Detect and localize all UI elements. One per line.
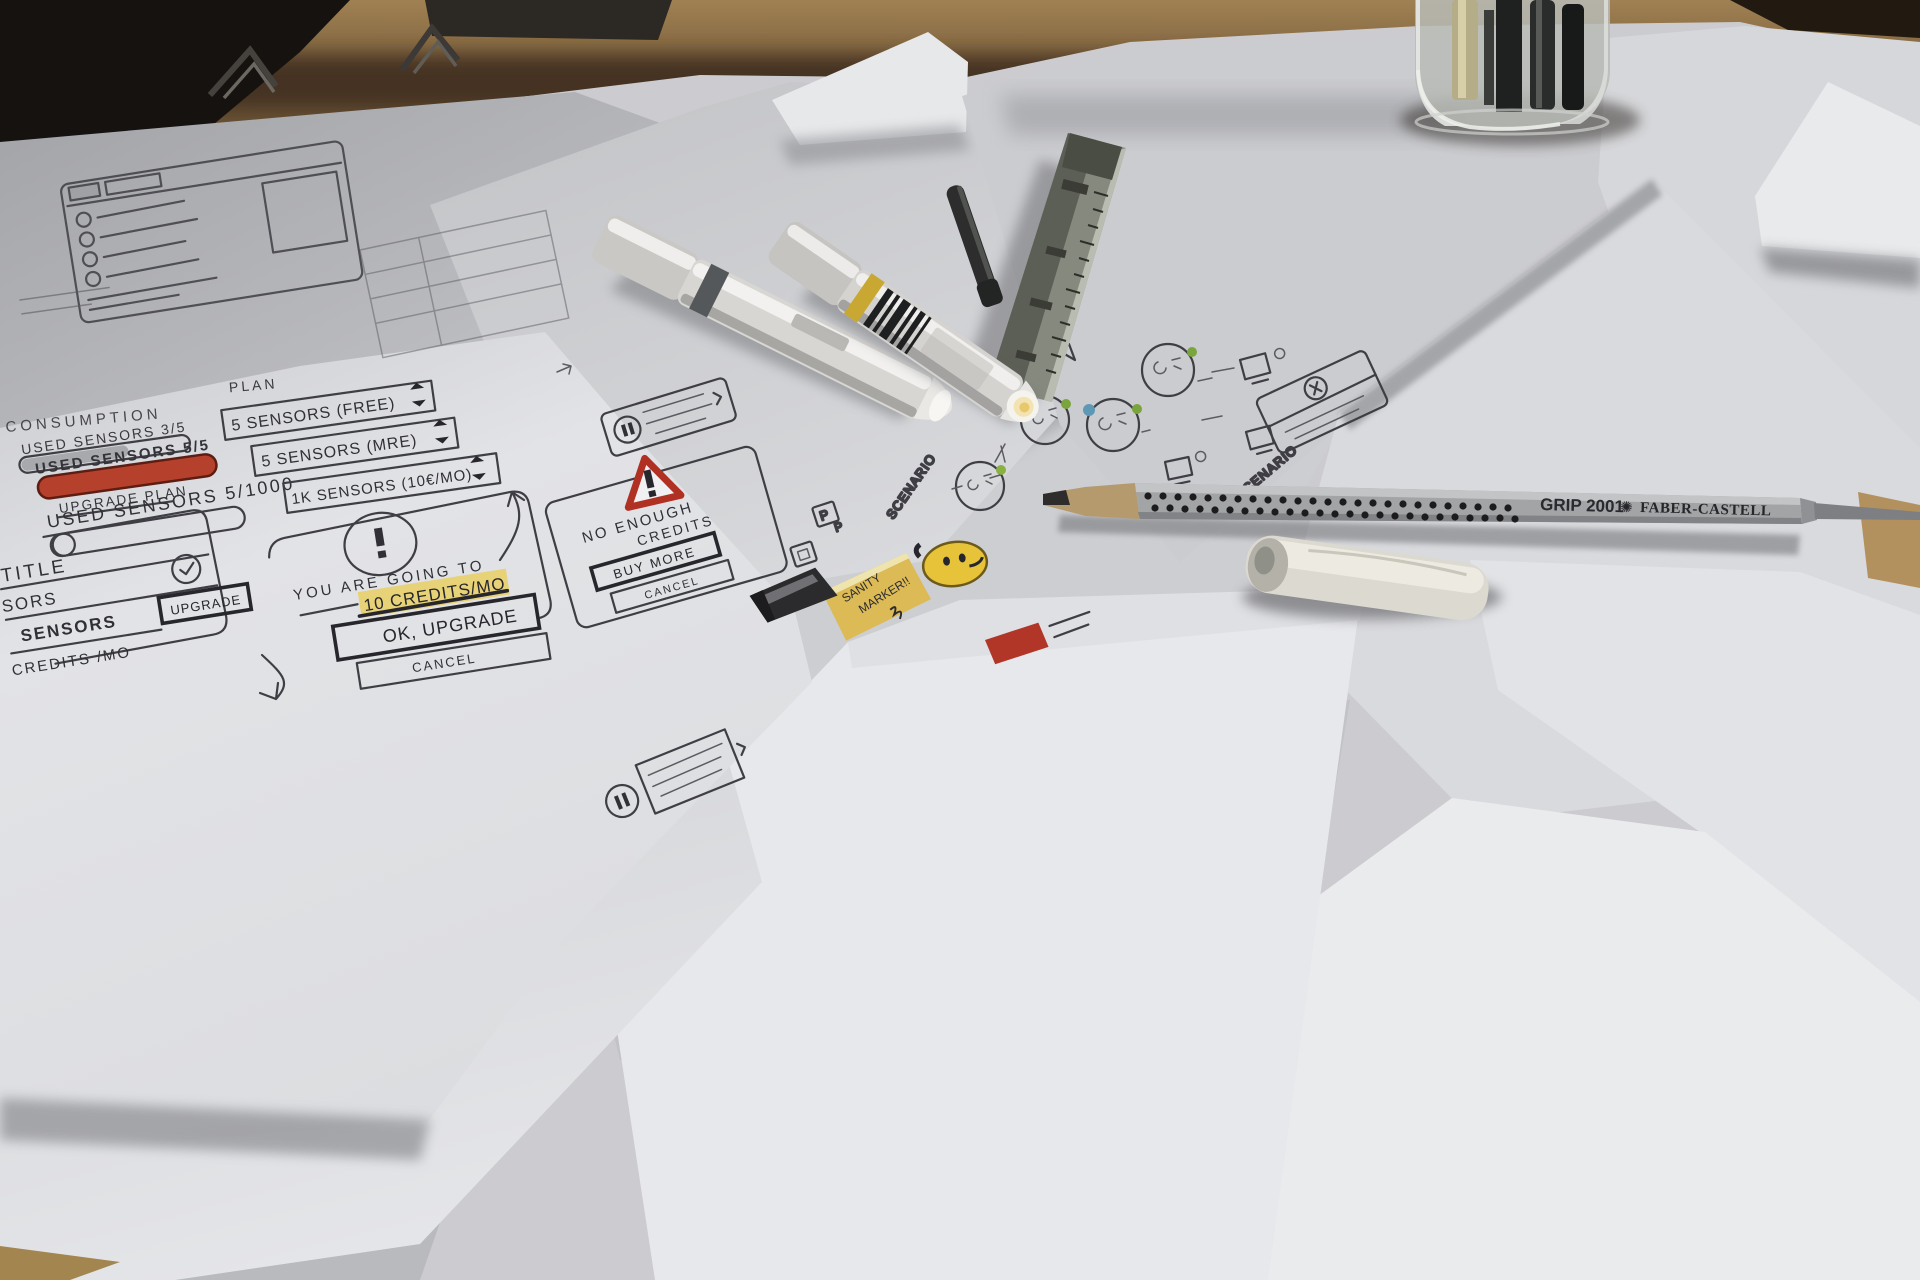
svg-text:✺: ✺ bbox=[1620, 500, 1633, 516]
svg-text:GRIP 2001: GRIP 2001 bbox=[1540, 495, 1624, 516]
